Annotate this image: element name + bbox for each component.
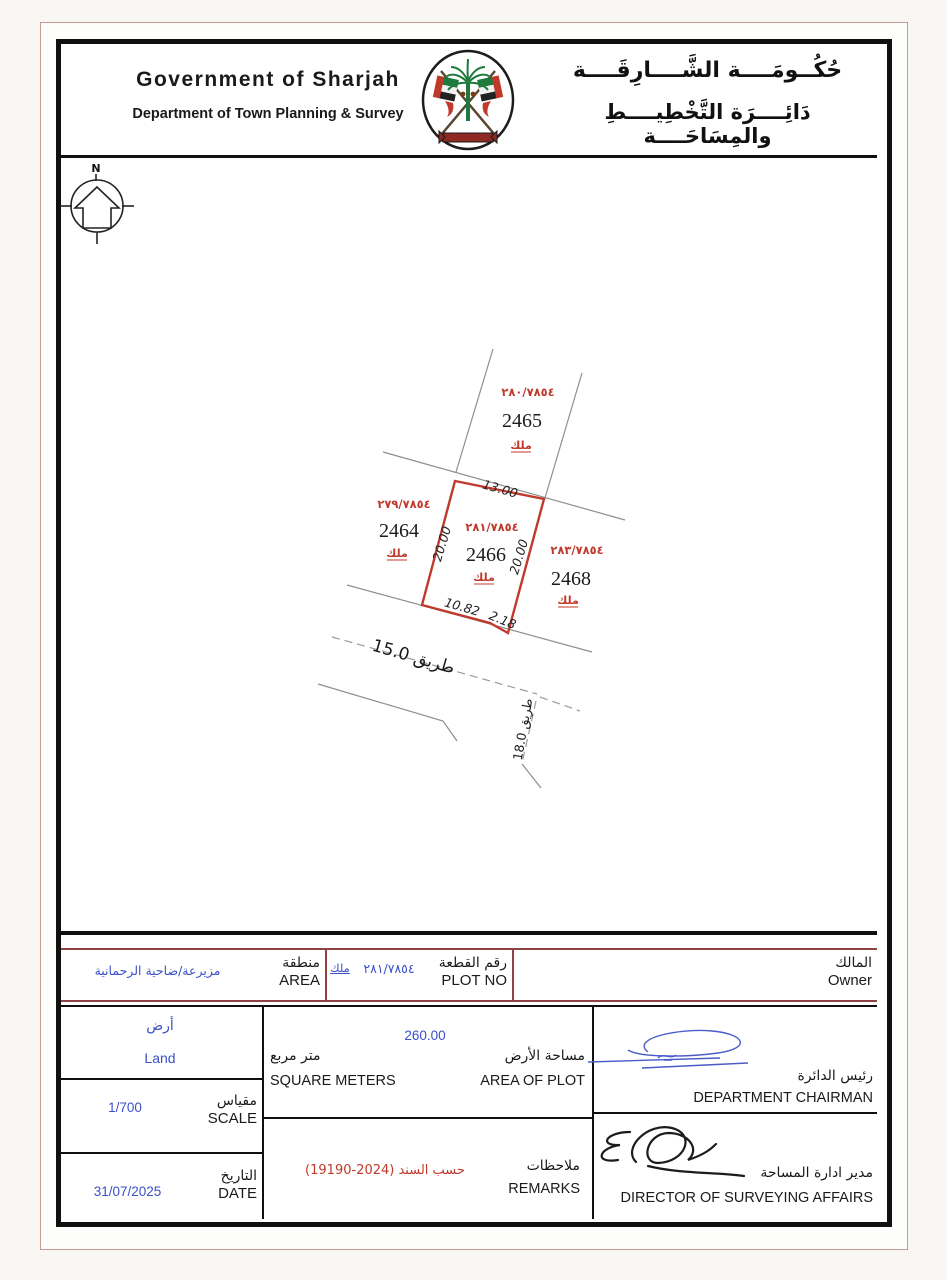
north-compass-icon (60, 174, 134, 244)
plot-no-label: رقم القطعة PLOT NO (415, 955, 507, 989)
area-label: منطقة AREA (240, 955, 320, 989)
owner-row-top-border (61, 948, 877, 950)
land-scale-divider (61, 1078, 264, 1080)
director-label-ar: مدير ادارة المساحة (730, 1165, 873, 1181)
plot-number: 2466 (466, 544, 506, 566)
map-bottom-divider (61, 931, 877, 935)
scale-label-en: SCALE (175, 1110, 257, 1127)
land-type-ar: أرض (100, 1018, 220, 1034)
plot-no-label-en: PLOT NO (415, 972, 507, 989)
dimension-left: 20.00 (429, 524, 454, 563)
plot-area-value: 260.00 (375, 1028, 475, 1043)
plot-no-value: ٢٨١/٧٨٥٤ (350, 961, 428, 976)
owner-label: المالك Owner (800, 955, 872, 989)
remarks-label-en: REMARKS (455, 1181, 580, 1198)
plot-tenure: ملك (386, 547, 408, 560)
scale-label-ar: مقياس (175, 1093, 257, 1110)
plot-ref: ٢٨٠/٧٨٥٤ (501, 385, 554, 399)
plot-number: 2468 (551, 568, 591, 590)
owner-label-ar: المالك (800, 955, 872, 972)
plot-ref: ٢٨١/٧٨٥٤ (465, 520, 518, 534)
unit-label-ar: متر مربع (270, 1048, 420, 1065)
chairman-director-divider (592, 1112, 877, 1114)
plot-2466-labels: ٢٨١/٧٨٥٤ 2466 ملك (465, 520, 518, 584)
table-top-border (61, 1005, 877, 1007)
date-value: 31/07/2025 (75, 1184, 180, 1199)
date-label: التاريخ DATE (175, 1168, 257, 1202)
scale-label: مقياس SCALE (175, 1093, 257, 1127)
owner-row-bottom-border (61, 1000, 877, 1002)
road-centerlines (332, 637, 580, 763)
date-label-en: DATE (175, 1185, 257, 1202)
owner-row-divider-1 (325, 948, 327, 1002)
plot-2464-labels: ٢٧٩/٧٨٥٤ 2464 ملك (377, 497, 430, 560)
chairman-signature (580, 1022, 760, 1080)
plot-tenure: ملك (473, 571, 495, 584)
plot-area-label-ar: مساحة الأرض (455, 1048, 585, 1065)
unit-label: متر مربع SQUARE METERS (270, 1048, 420, 1090)
scale-value: 1/700 (80, 1100, 170, 1115)
plot-area-label: مساحة الأرض AREA OF PLOT (455, 1048, 585, 1090)
owner-row-divider-2 (512, 948, 514, 1002)
area-label-ar: منطقة (240, 955, 320, 972)
area-label-en: AREA (240, 972, 320, 989)
plot-ref: ٢٨٣/٧٨٥٤ (550, 543, 603, 557)
plot-tenure: ملك (557, 594, 579, 607)
director-label-en: DIRECTOR OF SURVEYING AFFAIRS (620, 1190, 873, 1206)
north-label: N (91, 162, 100, 175)
chairman-label-en: DEPARTMENT CHAIRMAN (660, 1090, 873, 1106)
road-18-label: طريق 18.0 (510, 697, 537, 761)
plot-tenure: ملك (510, 439, 532, 452)
date-label-ar: التاريخ (175, 1168, 257, 1185)
plot-ref: ٢٧٩/٧٨٥٤ (377, 497, 430, 511)
plot-number: 2464 (379, 520, 419, 542)
plot-2465-labels: ٢٨٠/٧٨٥٤ 2465 ملك (501, 385, 554, 452)
area-value: مزيرعة/ضاحية الرحمانية (75, 963, 240, 978)
dimension-top: 13.00 (481, 477, 520, 501)
unit-label-en: SQUARE METERS (270, 1073, 420, 1090)
owner-label-en: Owner (800, 972, 872, 989)
plot-number: 2465 (502, 410, 542, 432)
site-plan-document: Government of Sharjah Department of Town… (0, 0, 947, 1280)
plot-no-label-ar: رقم القطعة (415, 955, 507, 972)
scale-date-divider (61, 1152, 264, 1154)
road-15-label: طريق 15.0 (370, 636, 457, 679)
table-col-divider-1 (262, 1005, 264, 1219)
plot-area-label-en: AREA OF PLOT (455, 1073, 585, 1090)
plot-2468-labels: ٢٨٣/٧٨٥٤ 2468 ملك (550, 543, 603, 607)
land-type-en: Land (100, 1050, 220, 1066)
area-remarks-divider (262, 1117, 594, 1119)
plot-no-tenure: ملك (328, 961, 352, 975)
chairman-label-ar: رئيس الدائرة (745, 1068, 873, 1084)
remarks-value: حسب السند (2024-19190) (285, 1163, 485, 1178)
